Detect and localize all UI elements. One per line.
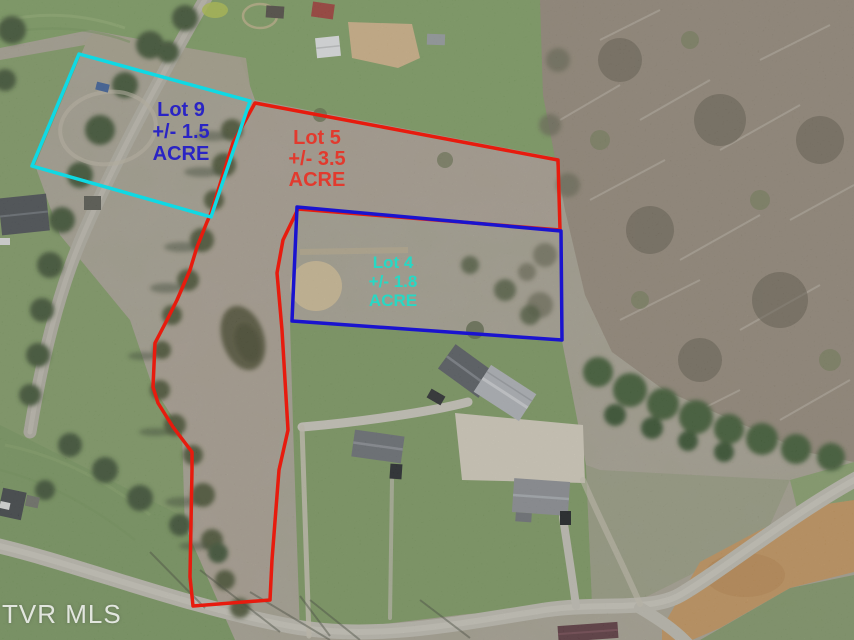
lot-4-unit: ACRE: [369, 291, 418, 310]
lot-4-label: Lot 4 +/- 1.8 ACRE: [369, 253, 418, 310]
mls-watermark: TVR MLS: [2, 599, 122, 630]
lot-5-name: Lot 5: [288, 128, 345, 149]
aerial-lot-photo: Lot 9 +/- 1.5 ACRE Lot 5 +/- 3.5 ACRE Lo…: [0, 0, 854, 640]
lot-4-acreage: +/- 1.8: [369, 272, 418, 291]
aerial-photo-canvas: [0, 0, 854, 640]
lot-4-name: Lot 4: [369, 253, 418, 272]
lot-5-label: Lot 5 +/- 3.5 ACRE: [288, 128, 345, 191]
lot-5-unit: ACRE: [288, 170, 345, 191]
lot-9-name: Lot 9: [152, 99, 209, 121]
lot-9-unit: ACRE: [152, 143, 209, 165]
lot-9-label: Lot 9 +/- 1.5 ACRE: [152, 99, 209, 165]
lot-5-acreage: +/- 3.5: [288, 149, 345, 170]
lot-9-acreage: +/- 1.5: [152, 121, 209, 143]
